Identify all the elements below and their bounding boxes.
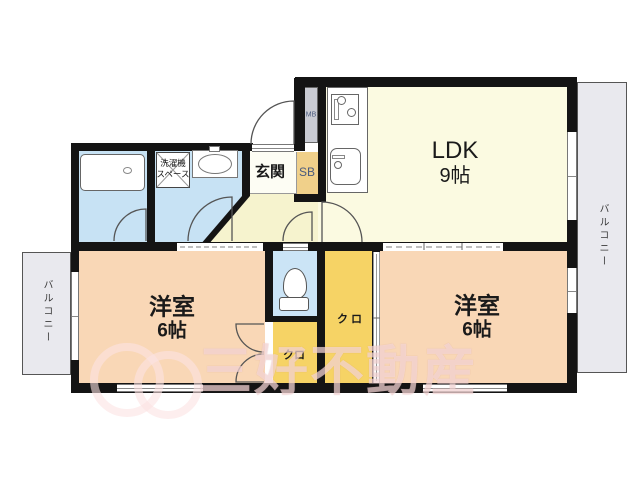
room-label-shoebox: SB (299, 166, 315, 178)
wall-top (295, 77, 577, 87)
watermark-company-text: 三好不動産 (198, 327, 478, 406)
balcony-right-label: バルコニー (597, 204, 607, 269)
entry-door-arc (251, 101, 294, 144)
toilet-door-arc (283, 212, 312, 241)
room-size-ldk: 9帖 (439, 166, 470, 186)
wall-entrance-left (242, 143, 250, 196)
vanity-basin-icon (198, 154, 232, 174)
stove-burner2-icon (347, 108, 356, 117)
room-label-meterbox: MB (306, 112, 317, 119)
room-label-west-left: 洋室 (149, 296, 195, 319)
room-label-closet-side: クロ (337, 315, 365, 326)
wall-entry-right (294, 78, 305, 151)
room-label-west-right: 洋室 (454, 295, 500, 318)
kitchen-faucet-icon (332, 155, 345, 159)
watermark-logo-icon (134, 351, 202, 419)
bathtub-drain-icon (123, 167, 132, 174)
toilet-base-icon (279, 297, 309, 311)
floor-plan: LDK 9帖 洋室 6帖 洋室 6帖 玄関 SB MB クロ クロ 洗濯機 スペ… (0, 0, 640, 480)
sliding-door-ldk (383, 243, 503, 251)
balcony-left-label: バルコニー (41, 280, 51, 345)
window-ldk-right (567, 132, 577, 220)
kitchen-faucet-knob-icon (334, 161, 342, 169)
room-label-entrance: 玄関 (255, 165, 285, 180)
wall-ldk-left (318, 85, 326, 202)
bathtub-icon (80, 154, 145, 191)
laundry-space-label-line1: 洗濯機 (160, 159, 186, 168)
wall-closet-divider (265, 316, 325, 322)
stove-burner1-icon (337, 96, 346, 105)
wall-bath-wash (147, 151, 155, 243)
wall-westleft-right (265, 243, 273, 323)
toilet-window (283, 243, 308, 251)
toilet-bowl-icon (283, 268, 307, 299)
room-label-ldk: LDK (432, 139, 479, 163)
laundry-space-label-line2: スペース (157, 170, 190, 179)
entry-threshold (252, 144, 294, 152)
wall-left-upper (71, 143, 79, 251)
window-west-right (567, 268, 577, 313)
wall-shoebox-bottom (294, 194, 326, 202)
room-size-west-left: 6帖 (157, 322, 187, 341)
vanity-faucet-icon (209, 146, 220, 152)
sliding-door-west-left (177, 243, 263, 251)
window-west-left-side (71, 272, 79, 360)
